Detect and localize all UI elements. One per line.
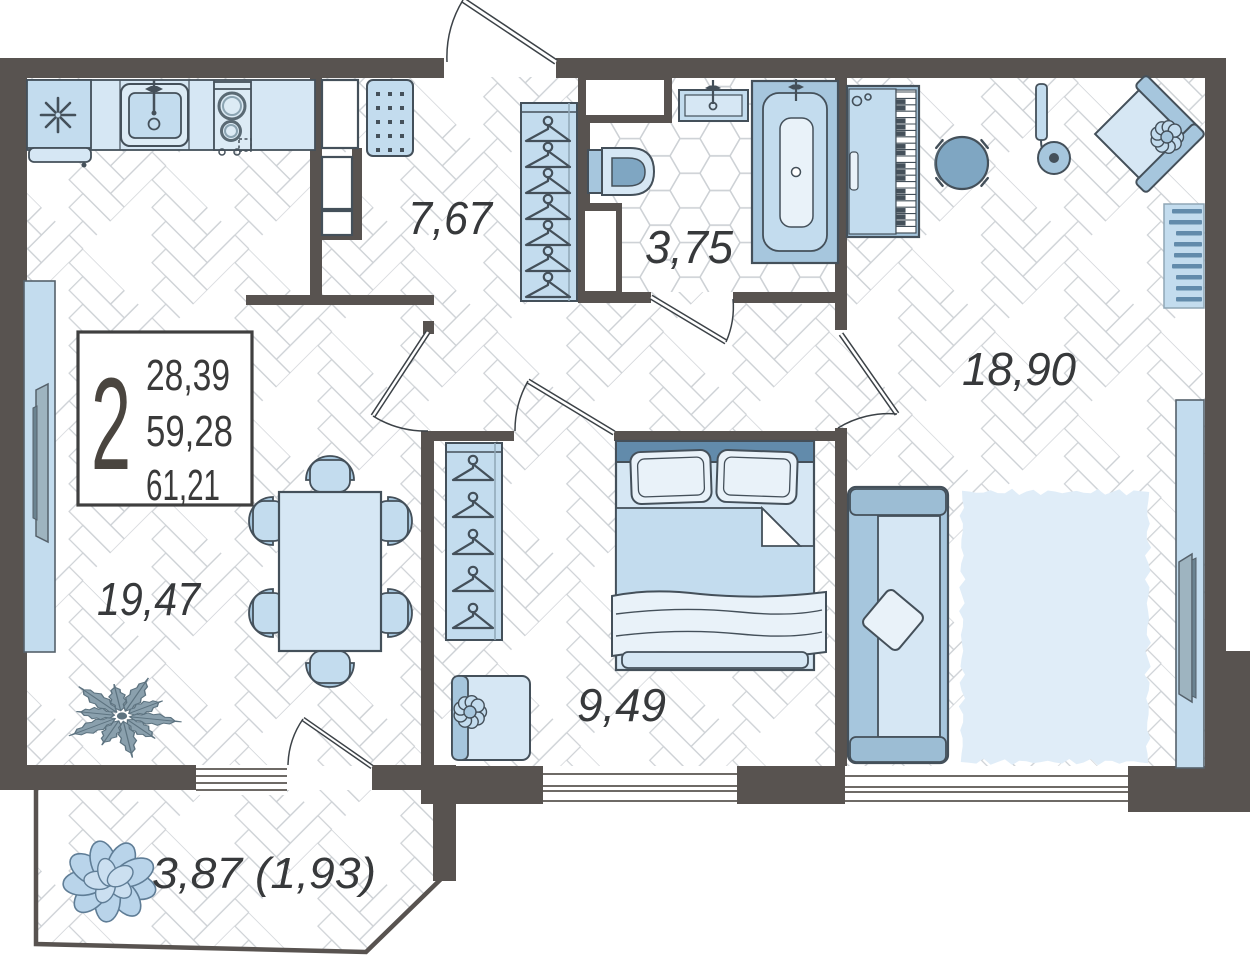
svg-text:7,67: 7,67 [408, 192, 493, 244]
svg-text:61,21: 61,21 [146, 461, 220, 510]
svg-text:18,90: 18,90 [962, 343, 1076, 395]
svg-text:3,87 (1,93): 3,87 (1,93) [152, 849, 376, 898]
svg-text:19,47: 19,47 [97, 573, 201, 625]
svg-text:28,39: 28,39 [146, 351, 230, 400]
svg-text:9,49: 9,49 [577, 679, 666, 731]
svg-text:59,28: 59,28 [146, 407, 233, 456]
svg-text:3,75: 3,75 [645, 221, 733, 273]
svg-text:2: 2 [91, 351, 131, 497]
